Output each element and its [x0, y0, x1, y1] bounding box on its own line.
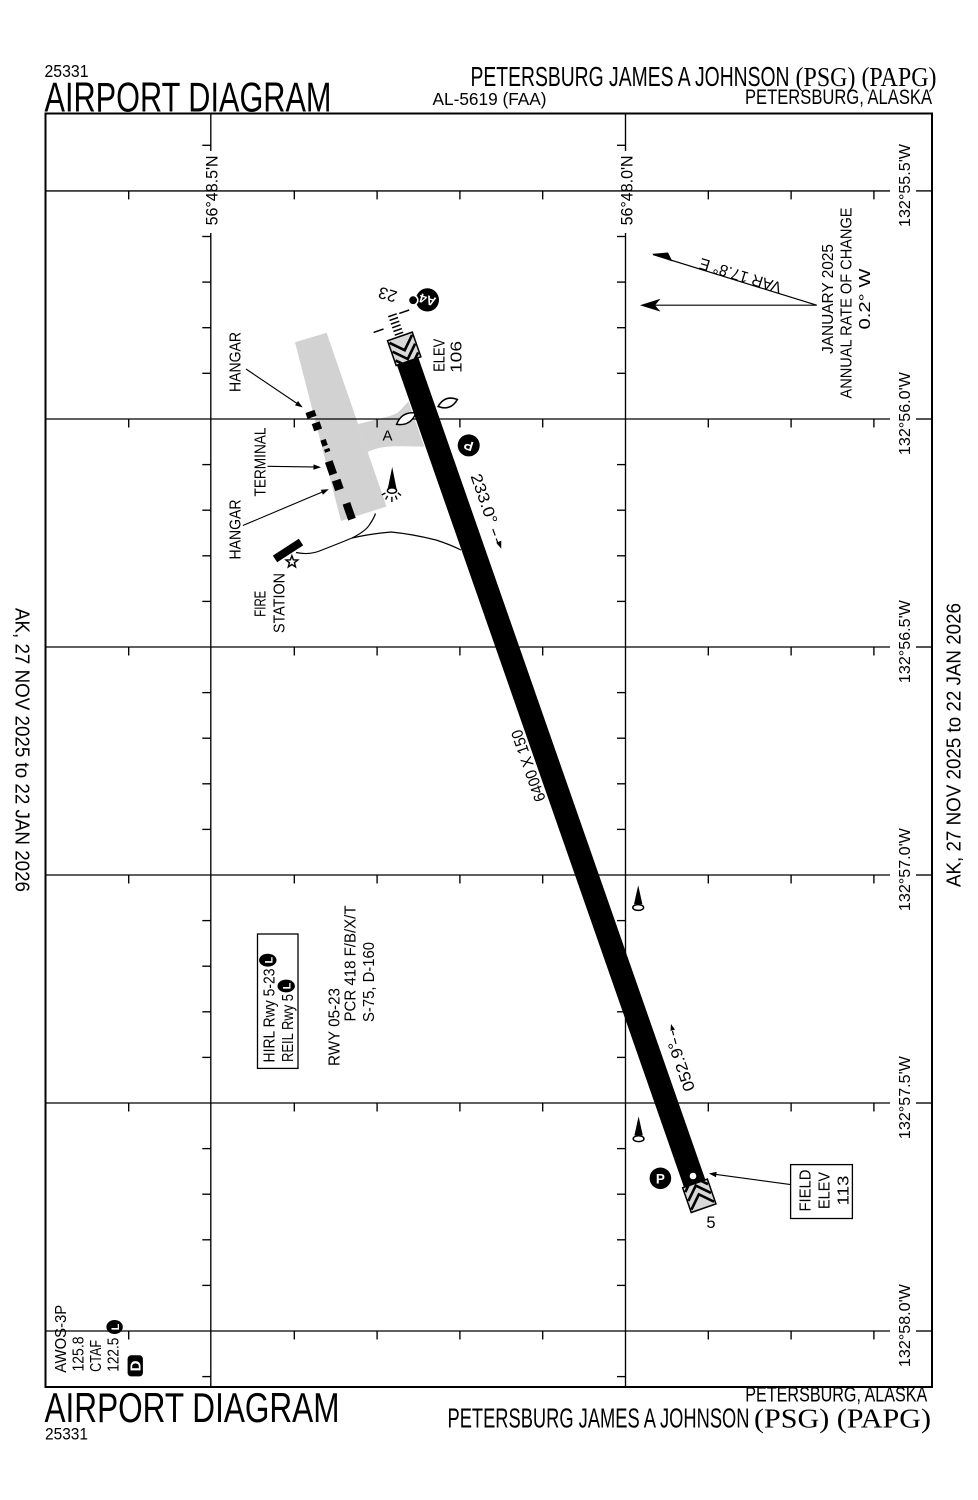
- svg-text:132°57.5'W: 132°57.5'W: [897, 1055, 914, 1139]
- svg-text:PCR 418 F/B/X/T: PCR 418 F/B/X/T: [343, 905, 360, 1021]
- svg-text:STATION: STATION: [272, 573, 289, 633]
- svg-text:HANGAR: HANGAR: [228, 500, 245, 560]
- svg-text:S-75, D-160: S-75, D-160: [361, 942, 378, 1022]
- svg-text:CTAF: CTAF: [88, 1340, 105, 1372]
- svg-text:113: 113: [836, 1175, 853, 1205]
- svg-text:AK, 27 NOV 2025 to 22 JAN 2: AK, 27 NOV 2025 to 22 JAN 2026: [944, 603, 966, 887]
- svg-text:L: L: [263, 957, 275, 964]
- svg-text:125.8: 125.8: [71, 1336, 88, 1371]
- svg-text:132°58.0'W: 132°58.0'W: [897, 1283, 914, 1367]
- svg-text:132°55.5'W: 132°55.5'W: [897, 143, 914, 227]
- svg-text:PETERSBURG JAMES A JOHNSON: PETERSBURG JAMES A JOHNSON: [448, 1403, 750, 1434]
- svg-text:JANUARY 2025: JANUARY 2025: [820, 244, 837, 354]
- svg-text:REIL Rwy 5: REIL Rwy 5: [280, 994, 297, 1062]
- svg-text:A: A: [382, 428, 392, 445]
- svg-text:AK, 27 NOV 2025 to 22 JAN 2: AK, 27 NOV 2025 to 22 JAN 2026: [11, 608, 33, 892]
- svg-text:FIRE: FIRE: [253, 591, 270, 617]
- svg-text:RWY 05-23: RWY 05-23: [327, 988, 344, 1066]
- svg-text:P: P: [656, 1171, 665, 1186]
- svg-text:L: L: [110, 1323, 122, 1330]
- svg-text:56°48.5'N: 56°48.5'N: [204, 155, 222, 225]
- svg-text:ELEV: ELEV: [817, 1172, 834, 1209]
- svg-text:ANNUAL RATE OF CHANGE: ANNUAL RATE OF CHANGE: [839, 208, 856, 399]
- svg-text:AIRPORT DIAGRAM: AIRPORT DIAGRAM: [45, 1384, 340, 1431]
- svg-text:AWOS-3P: AWOS-3P: [53, 1305, 70, 1373]
- svg-text:56°48.0'N: 56°48.0'N: [618, 155, 636, 225]
- svg-text:106: 106: [449, 341, 466, 373]
- svg-text:23: 23: [376, 283, 399, 306]
- svg-text:132°57.0'W: 132°57.0'W: [897, 827, 914, 911]
- svg-text:HANGAR: HANGAR: [228, 332, 245, 392]
- svg-text:132°56.0'W: 132°56.0'W: [897, 371, 914, 455]
- svg-text:5: 5: [706, 1214, 715, 1232]
- svg-text:FIELD: FIELD: [798, 1170, 815, 1212]
- svg-text:AL-5619 (FAA): AL-5619 (FAA): [433, 89, 547, 109]
- svg-text:132°56.5'W: 132°56.5'W: [897, 599, 914, 683]
- svg-text:L: L: [282, 982, 294, 989]
- svg-text:25331: 25331: [45, 1425, 88, 1444]
- svg-text:ELEV: ELEV: [432, 339, 449, 372]
- svg-text:(PSG) (PAPG): (PSG) (PAPG): [754, 1404, 931, 1434]
- svg-text:0.2° W: 0.2° W: [857, 267, 874, 329]
- svg-text:TERMINAL: TERMINAL: [253, 427, 270, 496]
- svg-text:VAR 17.8° E: VAR 17.8° E: [698, 254, 784, 296]
- svg-text:D: D: [127, 1360, 144, 1371]
- svg-text:PETERSBURG JAMES A JOHNSON: PETERSBURG JAMES A JOHNSON: [471, 61, 790, 92]
- svg-text:HIRL Rwy 5-23: HIRL Rwy 5-23: [262, 968, 279, 1062]
- svg-text:122.5: 122.5: [106, 1338, 123, 1372]
- svg-text:PETERSBURG, ALASKA: PETERSBURG, ALASKA: [745, 86, 932, 109]
